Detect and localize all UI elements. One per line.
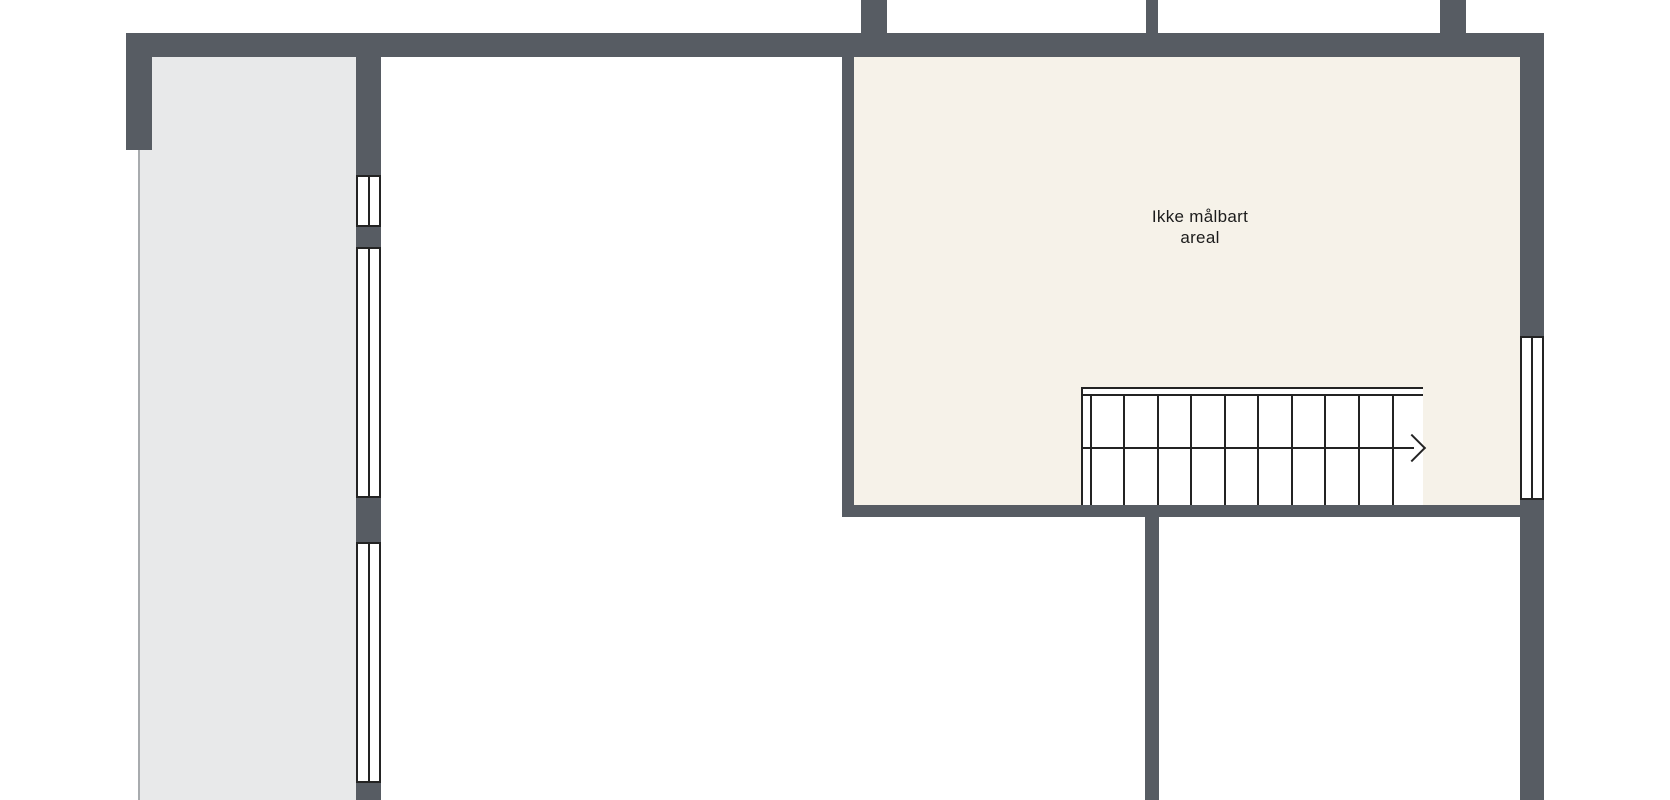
stair-tread-line — [1090, 396, 1092, 505]
gray-room-east-wall-seg-4 — [356, 783, 381, 800]
window-mullion — [368, 249, 370, 496]
staircase — [1081, 387, 1423, 505]
upper-party-wall-stub-3 — [1440, 0, 1466, 33]
window-right-wall — [1520, 336, 1544, 500]
cream-room-west-wall — [842, 57, 854, 517]
stair-tread-line — [1123, 396, 1125, 505]
window-gray-room-1 — [356, 175, 381, 227]
window-mullion — [368, 544, 370, 781]
gray-room-east-wall-seg-1 — [356, 57, 381, 175]
stair-tread-line — [1257, 396, 1259, 505]
stair-tread-line — [1190, 396, 1192, 505]
upper-party-wall-stub-2 — [1146, 0, 1158, 33]
window-mullion — [1531, 338, 1533, 498]
side-room-gray — [139, 57, 356, 800]
stair-direction-line — [1083, 447, 1414, 449]
stair-tread-line — [1157, 396, 1159, 505]
gray-room-east-wall-seg-3 — [356, 498, 381, 542]
room-label-line2: areal — [1075, 227, 1325, 248]
lower-interior-wall — [1145, 517, 1159, 800]
cream-room-south-wall — [842, 505, 1544, 517]
left-exterior-wall-stub — [126, 33, 152, 150]
stair-tread-line — [1358, 396, 1360, 505]
room-label: Ikke målbart areal — [1075, 206, 1325, 248]
stair-tread-line — [1392, 396, 1394, 505]
upper-party-wall-stub-1 — [861, 0, 887, 33]
window-gray-room-3 — [356, 542, 381, 783]
stair-top-rail — [1083, 387, 1423, 396]
gray-room-west-boundary-line — [138, 150, 140, 800]
top-exterior-wall — [126, 33, 1544, 57]
right-exterior-wall-seg-2 — [1520, 500, 1544, 800]
window-gray-room-2 — [356, 247, 381, 498]
room-label-line1: Ikke målbart — [1075, 206, 1325, 227]
right-exterior-wall-seg-1 — [1520, 33, 1544, 336]
stair-direction-arrow-icon — [1398, 434, 1426, 462]
gray-room-east-wall-seg-2 — [356, 227, 381, 247]
stair-tread-line — [1324, 396, 1326, 505]
stair-tread-line — [1291, 396, 1293, 505]
window-mullion — [368, 177, 370, 225]
stair-tread-line — [1224, 396, 1226, 505]
floor-plan: Ikke målbart areal — [0, 0, 1670, 800]
